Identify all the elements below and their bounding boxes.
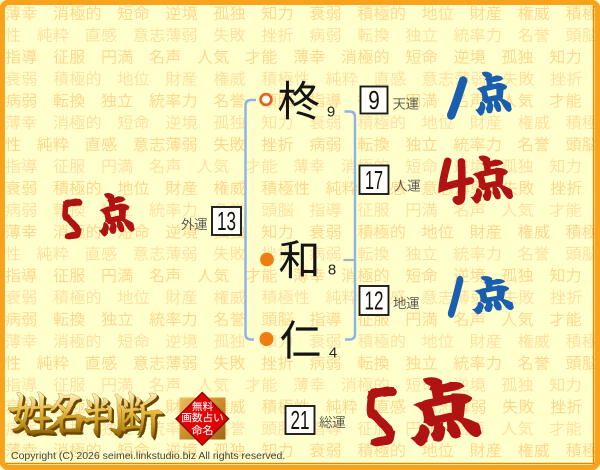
svg-text:13: 13: [217, 208, 236, 236]
svg-text:Copyright (C) 2026 seimei.link: Copyright (C) 2026 seimei.linkstudio.biz…: [11, 450, 285, 462]
svg-text:12: 12: [365, 288, 384, 316]
svg-text:4: 4: [329, 344, 337, 361]
svg-text:17: 17: [365, 167, 383, 195]
svg-text:21: 21: [291, 407, 310, 435]
svg-text:9: 9: [327, 103, 335, 120]
svg-text:9: 9: [368, 87, 380, 115]
svg-text:8: 8: [328, 261, 336, 278]
